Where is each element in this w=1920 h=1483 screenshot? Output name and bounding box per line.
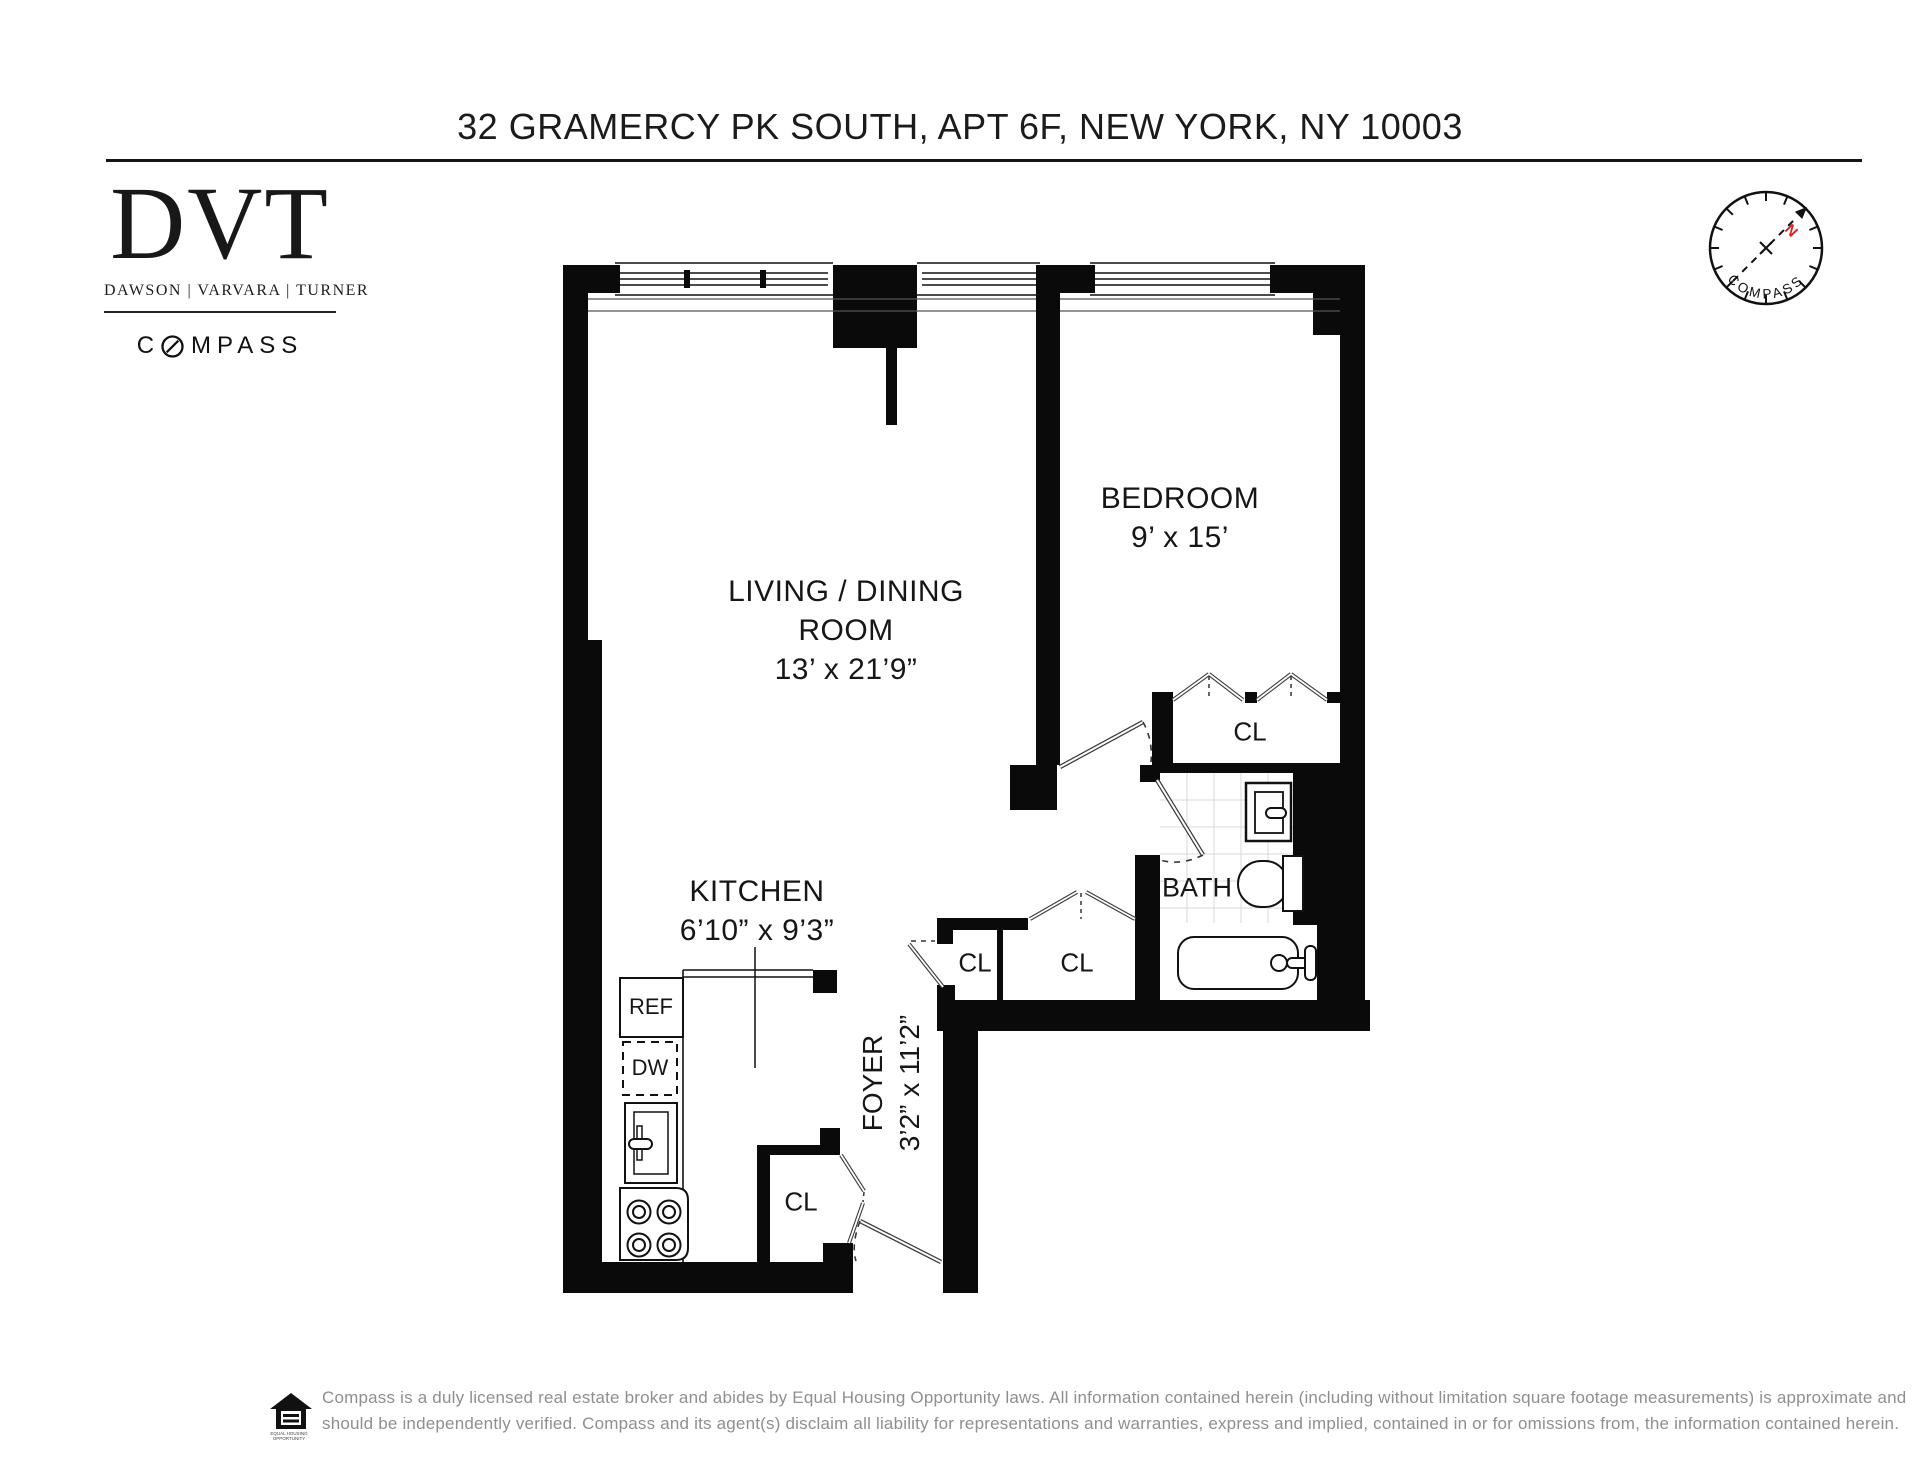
wall-top-column <box>833 265 917 348</box>
compass-wordmark: C MPASS <box>104 332 336 360</box>
kitchen-pass-through-counter <box>683 970 813 977</box>
living-room-label: LIVING / DINING ROOM 13’ x 21’9” <box>728 572 964 689</box>
title-rule <box>106 159 1862 162</box>
wall-top-left-corner <box>563 265 620 293</box>
wall-left-closet-bottom-jamb <box>937 985 955 1002</box>
equal-housing-caption: EQUAL HOUSING OPPORTUNITY <box>258 1431 320 1441</box>
living-room-name-line1: LIVING / DINING <box>728 572 964 611</box>
toilet-symbol <box>1238 856 1303 911</box>
hall-closet-right-label: CL <box>1060 948 1093 979</box>
compass-wordmark-start: C <box>137 332 160 360</box>
kitchen-label: KITCHEN 6’10” x 9’3” <box>680 872 834 950</box>
wall-closet-top-left-seg <box>943 918 1028 930</box>
walls <box>563 265 1370 1293</box>
bedroom-dims: 9’ x 15’ <box>1101 518 1260 557</box>
foyer-name: FOYER <box>854 943 891 1223</box>
living-window-1 <box>615 263 833 295</box>
living-window-2 <box>917 263 1040 295</box>
wall-bedroom-closet-left <box>1152 692 1173 773</box>
windows <box>588 263 1340 311</box>
bedroom-label: BEDROOM 9’ x 15’ <box>1101 479 1260 557</box>
wall-bath-door-jamb <box>1140 765 1160 782</box>
stove-symbol <box>620 1188 688 1260</box>
rose-north-arrowhead <box>1795 207 1807 219</box>
floor-plan-drawing <box>540 240 1400 1330</box>
page-title: 32 GRAMERCY PK SOUTH, APT 6F, NEW YORK, … <box>0 106 1920 148</box>
wall-foyer-right <box>943 1031 978 1293</box>
wall-closet-divider <box>997 930 1003 1000</box>
dvt-initials: DVT <box>104 170 336 278</box>
equal-housing-logo <box>268 1392 314 1432</box>
rose-center-cross <box>1760 242 1772 254</box>
hall-closet-bifold-doors <box>1030 892 1135 919</box>
wall-top-column-stem <box>886 348 897 425</box>
floor-plan-page: 32 GRAMERCY PK SOUTH, APT 6F, NEW YORK, … <box>0 0 1920 1483</box>
wall-bottom <box>563 1262 853 1293</box>
brokerage-logo: DVT DAWSON | VARVARA | TURNER C MPASS <box>104 170 336 360</box>
bath-door <box>1157 780 1203 862</box>
wall-bath-right-lower <box>1317 925 1365 1003</box>
compass-wordmark-end: MPASS <box>191 332 303 360</box>
bathtub-symbol <box>1160 925 1317 1000</box>
compass-rose-icon: N COMPASS <box>1704 186 1828 310</box>
logo-divider <box>104 311 336 313</box>
foyer-dims: 3’2” x 11’2” <box>891 943 928 1223</box>
bedroom-name: BEDROOM <box>1101 479 1260 518</box>
wall-kitchen-closet-left <box>757 1145 770 1262</box>
entry-door <box>854 1221 941 1262</box>
dvt-agent-names: DAWSON | VARVARA | TURNER <box>104 282 336 300</box>
bedroom-door <box>1060 722 1151 767</box>
bath-sink-symbol <box>1246 783 1291 841</box>
wall-left-closet-top-jamb <box>937 918 953 944</box>
dishwasher-label: DW <box>632 1055 669 1081</box>
wall-kitchen-closet-bottom-jamb <box>823 1243 853 1262</box>
wall-hall-bottom-band <box>937 1000 1370 1031</box>
refrigerator-label: REF <box>629 994 673 1020</box>
foyer-label: FOYER 3’2” x 11’2” <box>854 943 928 1223</box>
kitchen-dims: 6’10” x 9’3” <box>680 911 834 950</box>
wall-left-kitchen <box>588 640 602 1293</box>
compass-o-icon <box>160 334 185 359</box>
hall-closet-left-label: CL <box>958 948 991 979</box>
window-sill-lines <box>588 299 1340 311</box>
living-room-name-line2: ROOM <box>728 611 964 650</box>
rose-north-label: N <box>1781 221 1801 241</box>
wall-bedroom-closet-center-jamb <box>1245 692 1257 703</box>
wall-bedroom-closet-right-jamb <box>1327 692 1350 703</box>
living-room-dims: 13’ x 21’9” <box>728 650 964 689</box>
bedroom-window <box>1090 263 1275 295</box>
disclaimer-line-1: Compass is a duly licensed real estate b… <box>322 1388 1906 1408</box>
wall-closet-top-right-seg <box>1136 918 1160 930</box>
wall-kitchen-corner-block <box>813 970 837 993</box>
wall-kitchen-closet-top-jamb <box>820 1128 840 1155</box>
wall-divider-end-block <box>1010 765 1057 810</box>
kitchen-name: KITCHEN <box>680 872 834 911</box>
disclaimer-line-2: should be independently verified. Compas… <box>322 1414 1899 1434</box>
wall-living-bedroom-divider <box>1036 265 1060 765</box>
wall-left <box>563 265 588 1293</box>
bedroom-closet-label: CL <box>1233 717 1266 748</box>
kitchen-closet-label: CL <box>784 1187 817 1218</box>
bath-label: BATH <box>1162 873 1232 904</box>
kitchen-sink-symbol <box>625 1103 677 1183</box>
